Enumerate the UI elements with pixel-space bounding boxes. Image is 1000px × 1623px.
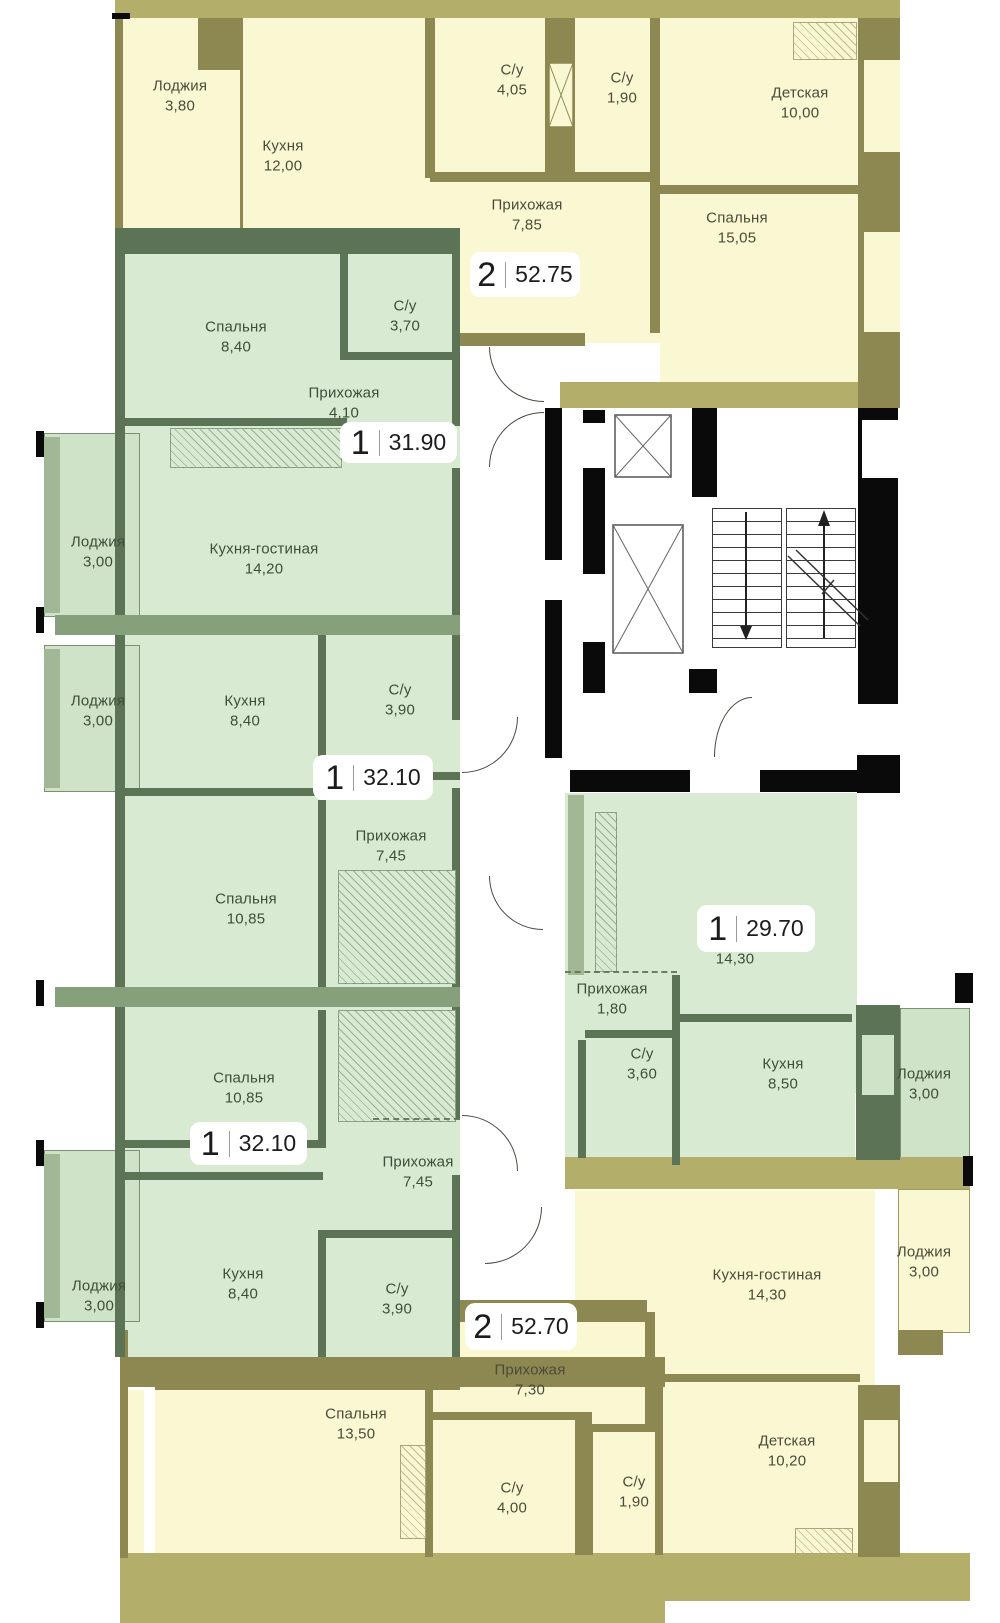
window-niche xyxy=(864,232,900,332)
door-arc-icon xyxy=(714,697,752,757)
room-name: Спальня xyxy=(215,890,277,910)
room-name: С/у xyxy=(497,1479,527,1499)
wall-segment xyxy=(340,352,460,360)
room-name: Лоджия xyxy=(71,692,125,712)
badge-room-count: 1 xyxy=(201,1127,220,1161)
door-arc-icon xyxy=(489,347,544,402)
room-area-value: 3,90 xyxy=(385,700,415,720)
room-area-value: 10,85 xyxy=(215,909,277,929)
wall-segment xyxy=(565,1157,970,1189)
room-area-value: 3,00 xyxy=(72,1296,126,1316)
room-area xyxy=(660,18,858,388)
wall-segment xyxy=(452,635,460,720)
room-label: Прихожая7,30 xyxy=(494,1361,565,1400)
wall-segment xyxy=(123,788,326,796)
wall-segment xyxy=(120,1553,970,1601)
wall-segment xyxy=(452,468,460,618)
apartment-badge[interactable]: 252.70 xyxy=(465,1303,577,1350)
badge-divider xyxy=(505,262,506,288)
room-label: Спальня8,40 xyxy=(205,318,267,357)
badge-area: 32.10 xyxy=(239,1132,297,1155)
wall-segment xyxy=(545,408,562,560)
wardrobe-hatch xyxy=(400,1445,426,1539)
wall-segment xyxy=(44,649,60,788)
room-name: Кухня-гостиная xyxy=(210,540,319,560)
wall-segment xyxy=(198,18,242,70)
wall-segment xyxy=(689,669,717,693)
room-label: Прихожая7,45 xyxy=(355,827,426,866)
wall-segment xyxy=(583,642,605,693)
apartment-badge[interactable]: 132.10 xyxy=(190,1122,307,1165)
wall-segment xyxy=(898,1330,943,1355)
dashed-wall xyxy=(565,971,677,973)
room-name: Кухня-гостиная xyxy=(713,1266,822,1286)
room-name: Спальня xyxy=(706,209,768,229)
room-name: Кухня xyxy=(222,1265,263,1285)
room-label: Прихожая1,80 xyxy=(576,980,647,1019)
room-name: Прихожая xyxy=(491,196,562,216)
room-area-value: 7,30 xyxy=(494,1380,565,1400)
wall-segment xyxy=(425,18,435,178)
badge-area: 32.10 xyxy=(363,766,421,789)
room-label: Кухня-гостиная14,20 xyxy=(210,540,319,579)
room-label: Кухня8,40 xyxy=(222,1265,263,1304)
room-name: Прихожая xyxy=(308,384,379,404)
room-area-value: 8,40 xyxy=(224,711,265,731)
badge-area: 31.90 xyxy=(389,431,447,454)
room-label: С/у4,05 xyxy=(497,61,527,100)
room-area-value: 3,70 xyxy=(390,316,420,336)
room-name: С/у xyxy=(627,1045,657,1065)
room-area-value: 3,90 xyxy=(382,1299,412,1319)
room-area-value: 3,00 xyxy=(897,1084,951,1104)
room-label: Лоджия3,80 xyxy=(153,77,207,116)
door-arc-icon xyxy=(485,1207,542,1264)
room-name: С/у xyxy=(607,69,637,89)
wall-segment xyxy=(36,980,44,1006)
wall-segment xyxy=(120,1357,665,1387)
room-label: С/у3,70 xyxy=(390,297,420,336)
room-label: С/у4,00 xyxy=(497,1479,527,1518)
room-label: Лоджия3,00 xyxy=(897,1243,951,1282)
room-name: Лоджия xyxy=(72,1277,126,1297)
room-name: Лоджия xyxy=(897,1065,951,1085)
window-niche xyxy=(862,420,898,478)
room-area-value: 3,80 xyxy=(153,96,207,116)
room-name: Лоджия xyxy=(71,533,125,553)
room-label: Лоджия3,00 xyxy=(897,1065,951,1104)
badge-room-count: 2 xyxy=(477,258,496,292)
wall-segment xyxy=(672,975,680,1165)
apartment-badge[interactable]: 132.10 xyxy=(313,755,433,800)
room-area xyxy=(118,18,460,230)
room-label: Детская10,00 xyxy=(772,84,829,123)
room-name: Кухня xyxy=(262,137,303,157)
room-name: Спальня xyxy=(205,318,267,338)
wardrobe-hatch xyxy=(795,1528,853,1554)
room-name: С/у xyxy=(619,1473,649,1493)
room-label: С/у1,90 xyxy=(607,69,637,108)
wall-segment xyxy=(592,1424,658,1432)
room-label: Прихожая7,85 xyxy=(491,196,562,235)
room-area-value: 12,00 xyxy=(262,156,303,176)
window-niche xyxy=(864,1420,898,1482)
wall-segment xyxy=(36,1302,44,1328)
badge-divider xyxy=(229,1131,230,1157)
dashed-wall xyxy=(373,1118,460,1120)
room-label: С/у3,90 xyxy=(385,681,415,720)
room-name: С/у xyxy=(382,1280,412,1300)
wall-segment xyxy=(568,795,584,975)
stairs-arrows-icon xyxy=(700,498,880,658)
room-label: Кухня8,40 xyxy=(224,692,265,731)
wall-segment xyxy=(318,1230,460,1238)
room-label: Кухня8,50 xyxy=(762,1055,803,1094)
wall-segment xyxy=(55,615,460,635)
wall-segment xyxy=(115,228,460,254)
apartment-badge[interactable]: 131.90 xyxy=(340,422,457,463)
room-area-value: 7,85 xyxy=(491,215,562,235)
room-label: Прихожая7,45 xyxy=(382,1153,453,1192)
wall-segment xyxy=(452,254,460,426)
wall-segment xyxy=(318,1010,326,1142)
wall-segment xyxy=(560,382,860,408)
wall-segment xyxy=(430,172,660,182)
wall-segment xyxy=(55,987,460,1007)
room-area-value: 13,50 xyxy=(325,1424,387,1444)
room-name: Лоджия xyxy=(153,77,207,97)
wall-segment xyxy=(36,431,44,457)
room-area-value: 10,20 xyxy=(759,1451,816,1471)
wall-segment xyxy=(318,800,326,990)
room-area-value: 1,90 xyxy=(619,1492,649,1512)
room-label: 14,30 xyxy=(716,949,755,969)
wall-segment xyxy=(955,973,973,1003)
wall-segment xyxy=(340,254,348,358)
room-area-value: 4,05 xyxy=(497,80,527,100)
room-label: Кухня-гостиная14,30 xyxy=(713,1266,822,1305)
room-name: С/у xyxy=(497,61,527,81)
room-area-value: 3,00 xyxy=(897,1262,951,1282)
wardrobe-hatch xyxy=(338,1010,456,1122)
wall-segment xyxy=(692,408,717,497)
badge-area: 29.70 xyxy=(746,917,804,940)
wall-segment xyxy=(452,1175,460,1357)
wall-segment xyxy=(660,185,858,194)
wall-segment xyxy=(585,1030,680,1038)
badge-room-count: 1 xyxy=(325,761,344,795)
room-label: Спальня10,85 xyxy=(215,890,277,929)
wall-segment xyxy=(760,770,858,792)
room-label: Прихожая4,10 xyxy=(308,384,379,423)
wall-segment xyxy=(120,1601,665,1623)
room-label: Спальня10,85 xyxy=(213,1069,275,1108)
room-label: Лоджия3,00 xyxy=(71,533,125,572)
wall-segment xyxy=(44,437,60,613)
wall-segment xyxy=(680,1014,852,1022)
room-area-value: 4,00 xyxy=(497,1498,527,1518)
wall-segment xyxy=(655,1380,663,1555)
wall-segment xyxy=(963,1156,973,1186)
badge-divider xyxy=(501,1314,502,1340)
room-area-value: 1,90 xyxy=(607,88,637,108)
wardrobe-hatch xyxy=(595,812,617,972)
room-area-value: 7,45 xyxy=(382,1172,453,1192)
wall-segment xyxy=(36,1140,44,1166)
wardrobe-hatch xyxy=(793,22,857,60)
wall-segment xyxy=(44,1154,60,1318)
wall-segment xyxy=(650,18,660,183)
wall-segment xyxy=(115,18,123,230)
room-label: Кухня12,00 xyxy=(262,137,303,176)
room-label: С/у3,90 xyxy=(382,1280,412,1319)
door-arc-icon xyxy=(489,876,543,930)
room-area-value: 14,20 xyxy=(210,559,319,579)
wall-segment xyxy=(583,468,605,574)
room-label: С/у1,90 xyxy=(619,1473,649,1512)
room-name: Лоджия xyxy=(897,1243,951,1263)
wall-segment xyxy=(318,1238,326,1357)
room-name: Кухня xyxy=(762,1055,803,1075)
room-label: Спальня15,05 xyxy=(706,209,768,248)
room-name: Прихожая xyxy=(576,980,647,1000)
wardrobe-hatch xyxy=(338,870,456,984)
badge-area: 52.70 xyxy=(511,1315,569,1338)
wall-segment xyxy=(112,13,130,19)
room-area-value: 3,60 xyxy=(627,1064,657,1084)
room-name: Спальня xyxy=(213,1069,275,1089)
wall-segment xyxy=(570,770,690,792)
room-area-value: 4,10 xyxy=(308,403,379,423)
door-arc-icon xyxy=(489,412,544,467)
window-niche xyxy=(864,60,900,152)
wall-segment xyxy=(123,1172,323,1180)
apartment-badge[interactable]: 129.70 xyxy=(697,905,815,952)
room-label: С/у3,60 xyxy=(627,1045,657,1084)
wall-segment xyxy=(857,755,900,793)
wall-segment xyxy=(585,1432,593,1555)
room-area-value: 8,40 xyxy=(205,337,267,357)
wall-segment xyxy=(240,18,243,230)
badge-room-count: 1 xyxy=(708,912,727,946)
wall-segment xyxy=(545,600,562,758)
room-name: Прихожая xyxy=(382,1153,453,1173)
room-label: Лоджия3,00 xyxy=(71,692,125,731)
shaft-icon xyxy=(548,62,574,128)
room-area-value: 10,00 xyxy=(772,103,829,123)
room-name: С/у xyxy=(385,681,415,701)
badge-divider xyxy=(353,765,354,791)
wall-segment xyxy=(430,1412,578,1420)
wall-segment xyxy=(455,333,585,346)
room-name: Прихожая xyxy=(494,1361,565,1381)
room-area-value: 14,30 xyxy=(716,949,755,969)
wall-segment xyxy=(115,0,900,18)
elevator-icon xyxy=(614,414,672,478)
room-name: Прихожая xyxy=(355,827,426,847)
room-name: Спальня xyxy=(325,1405,387,1425)
badge-divider xyxy=(736,916,737,942)
room-label: Лоджия3,00 xyxy=(72,1277,126,1316)
badge-room-count: 1 xyxy=(351,426,370,460)
room-area-value: 1,80 xyxy=(576,999,647,1019)
wall-segment xyxy=(578,1040,586,1158)
window-niche xyxy=(862,704,898,758)
door-arc-icon xyxy=(462,717,518,773)
wall-segment xyxy=(650,180,660,333)
room-name: С/у xyxy=(390,297,420,317)
room-area-value: 15,05 xyxy=(706,228,768,248)
floor-plan: Лоджия3,80 Кухня12,00 С/у4,05 С/у1,90 Де… xyxy=(0,0,1000,1623)
badge-area: 52.75 xyxy=(515,263,573,286)
room-name: Детская xyxy=(759,1432,816,1452)
room-area-value: 3,00 xyxy=(71,552,125,572)
wall-segment xyxy=(660,1374,860,1382)
wall-segment xyxy=(36,607,44,633)
wall-segment xyxy=(583,410,605,423)
room-area-value: 10,85 xyxy=(213,1088,275,1108)
apartment-badge[interactable]: 252.75 xyxy=(470,252,580,297)
room-area-value: 14,30 xyxy=(713,1285,822,1305)
room-area-value: 3,00 xyxy=(71,711,125,731)
room-area-value: 7,45 xyxy=(355,846,426,866)
room-name: Кухня xyxy=(224,692,265,712)
room-area-value: 8,40 xyxy=(222,1284,263,1304)
door-arc-icon xyxy=(462,1115,518,1171)
elevator-icon xyxy=(612,524,684,654)
room-area-value: 8,50 xyxy=(762,1074,803,1094)
badge-room-count: 2 xyxy=(473,1310,492,1344)
window-niche xyxy=(862,1035,894,1095)
room-label: Детская10,20 xyxy=(759,1432,816,1471)
room-name: Детская xyxy=(772,84,829,104)
wardrobe-hatch xyxy=(170,428,342,468)
badge-divider xyxy=(379,430,380,456)
room-label: Спальня13,50 xyxy=(325,1405,387,1444)
